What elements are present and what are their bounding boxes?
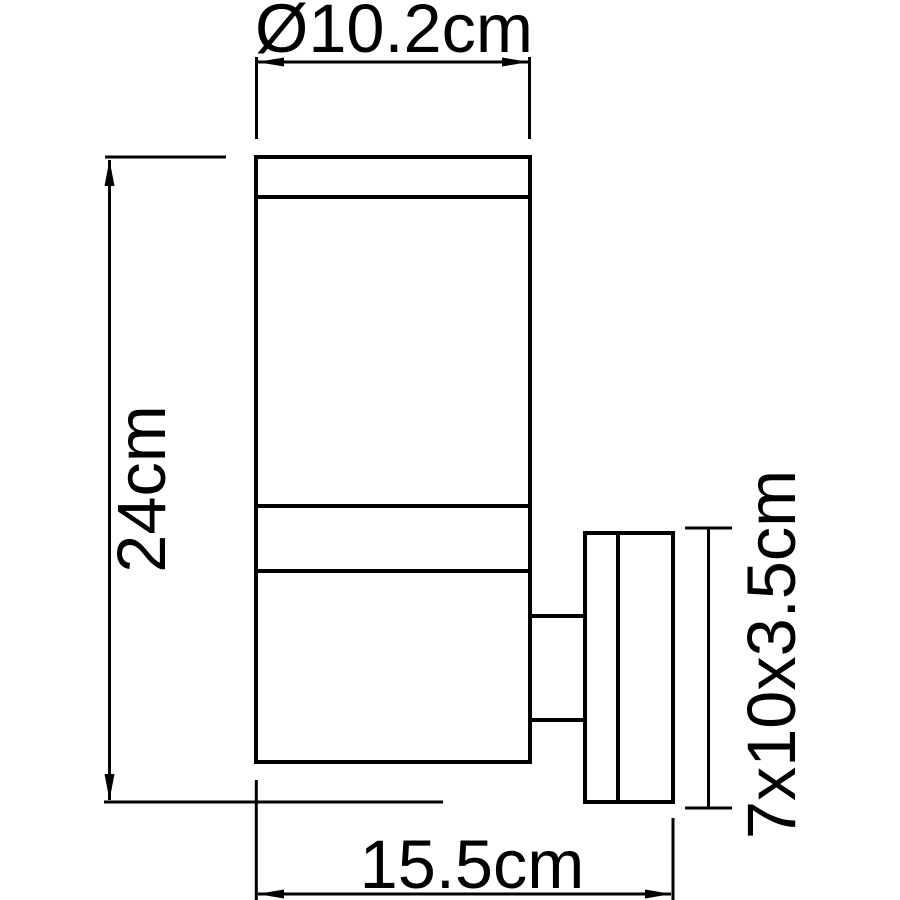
svg-text:Ø10.2cm: Ø10.2cm bbox=[255, 0, 533, 67]
svg-text:24cm: 24cm bbox=[103, 405, 180, 573]
svg-text:15.5cm: 15.5cm bbox=[360, 826, 585, 900]
svg-text:7x10x3.5cm: 7x10x3.5cm bbox=[733, 470, 810, 839]
